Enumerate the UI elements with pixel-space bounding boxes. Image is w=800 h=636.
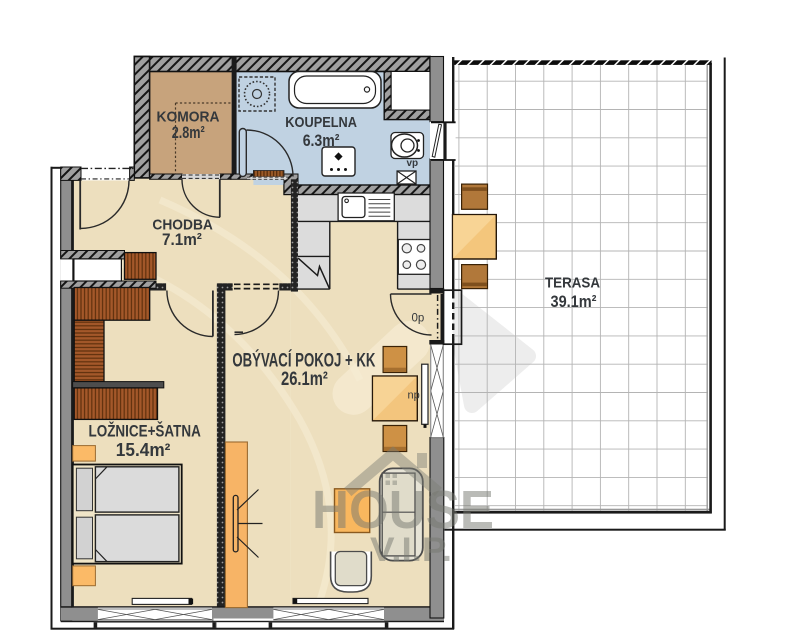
svg-text:TERASA: TERASA — [545, 275, 600, 292]
svg-text:7.1m²: 7.1m² — [162, 230, 202, 249]
svg-text:vp: vp — [407, 158, 419, 169]
svg-text:LOŽNICE+ŠATNA: LOŽNICE+ŠATNA — [89, 422, 201, 441]
svg-text:2.8m²: 2.8m² — [172, 123, 205, 142]
svg-text:0p: 0p — [412, 313, 425, 325]
svg-text:15.4m²: 15.4m² — [116, 440, 171, 460]
svg-text:6.3m²: 6.3m² — [303, 131, 340, 150]
svg-text:V.I.P.: V.I.P. — [370, 531, 452, 569]
svg-text:26.1m²: 26.1m² — [281, 369, 328, 390]
svg-text:np: np — [408, 389, 420, 401]
svg-text:KOUPELNA: KOUPELNA — [285, 114, 357, 131]
svg-text:39.1m²: 39.1m² — [551, 292, 597, 311]
